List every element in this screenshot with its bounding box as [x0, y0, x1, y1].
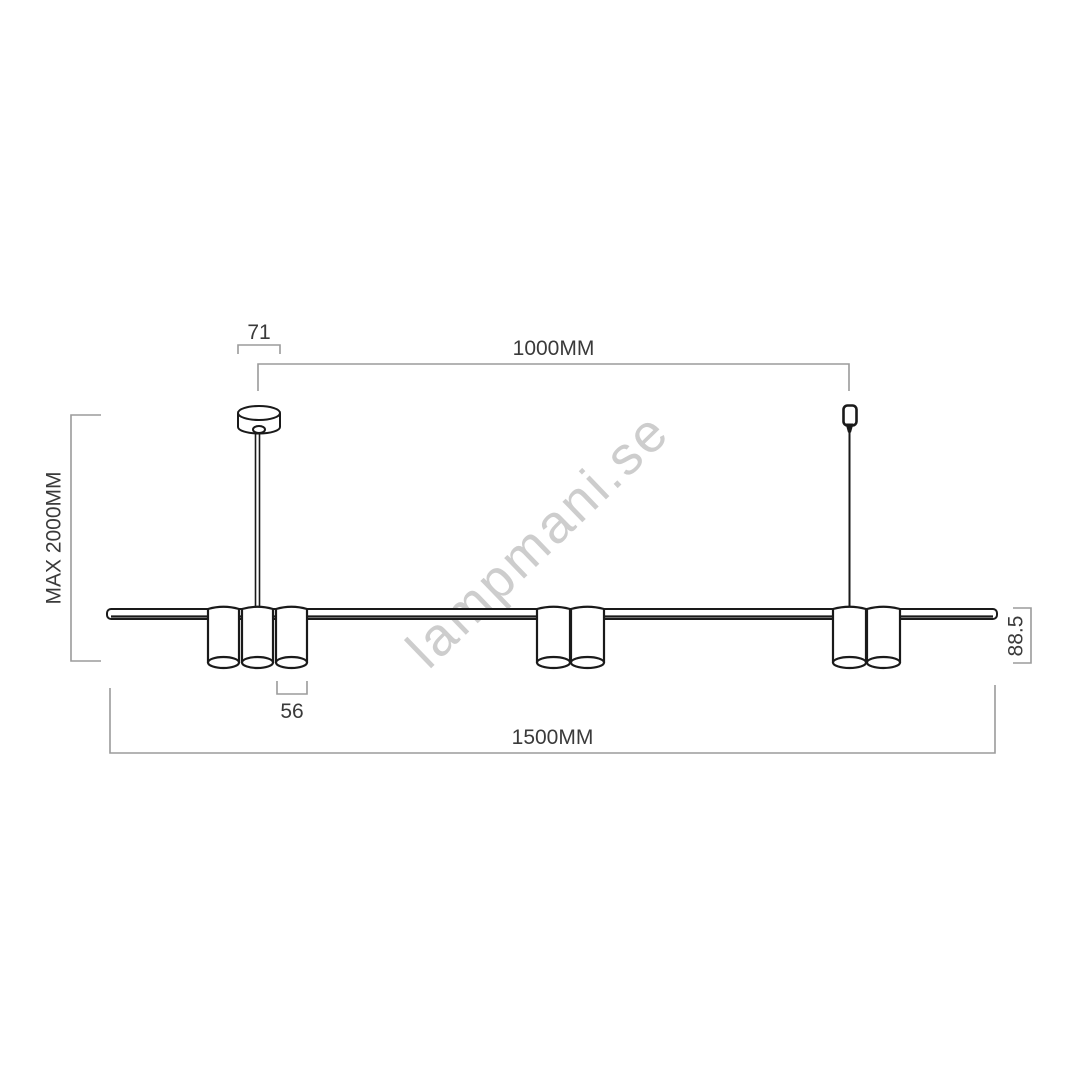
dim-line-suspension-spacing — [258, 364, 849, 391]
dimension-lines — [71, 345, 1031, 753]
max-height-label: MAX 2000MM — [44, 471, 65, 604]
shade-group-right — [833, 607, 900, 668]
suspension-spacing-label: 1000MM — [258, 338, 849, 359]
shade-diameter-label: 56 — [262, 701, 322, 722]
bar-height-label: 88.5 — [1006, 616, 1027, 657]
shade-group-left — [208, 607, 307, 668]
drawing-canvas — [0, 0, 1080, 1080]
dimension-drawing: lampmani.se — [0, 0, 1080, 1080]
dim-line-shade-diameter — [277, 681, 307, 694]
ceiling-canopy — [238, 406, 280, 434]
lamp-fixture — [107, 406, 997, 669]
dim-line-max-height — [71, 415, 101, 661]
shade-group-middle — [537, 607, 604, 668]
cord-grip-fitting — [844, 406, 857, 433]
suspension-wire-left — [256, 433, 260, 609]
total-length-label: 1500MM — [110, 727, 995, 748]
